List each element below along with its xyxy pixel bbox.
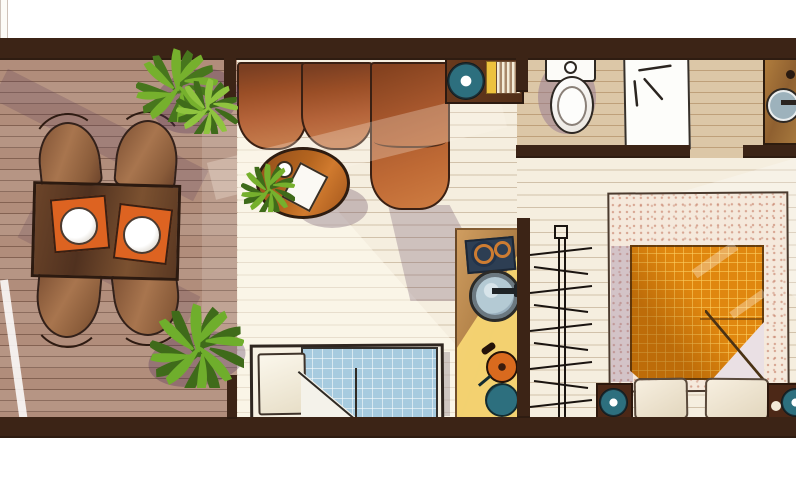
faucet [781,100,796,105]
bed-pillow [634,378,689,421]
washer-drum-sink [469,270,521,322]
round-sink [766,88,796,123]
fold-line [705,310,764,380]
burner-icon [494,241,511,258]
wall-bottom [0,417,796,438]
crease-line [700,318,764,320]
bed-pillow [705,378,769,421]
wall-top [0,38,796,60]
floor-plan-illustration [0,0,796,480]
blanket-fold-line [355,368,357,418]
plate [123,216,161,254]
sofa-cushion [237,62,307,150]
bed-shadow [611,246,633,382]
table-plant [241,158,295,212]
wall-bathroom-bedroom [743,145,796,158]
wall-bathroom-left [516,58,528,92]
wall-bathroom-bedroom [516,145,690,158]
small-knob [771,401,781,411]
shower-mat [623,56,691,150]
knob [786,70,795,79]
toilet-bowl-inner [557,86,587,126]
bed-pillow [257,353,306,416]
plate [60,207,98,245]
speaker [599,388,628,417]
burner-icon [474,244,494,264]
speaker [447,62,485,100]
frying-pan-teal [485,383,519,417]
potted-plant [176,72,238,134]
frying-pan-orange [486,351,518,383]
wall-bedroom-left [517,218,530,418]
drying-rack [528,224,596,420]
flush-button [564,61,577,74]
agave-plant [150,294,244,388]
shower-glyph [625,58,689,148]
